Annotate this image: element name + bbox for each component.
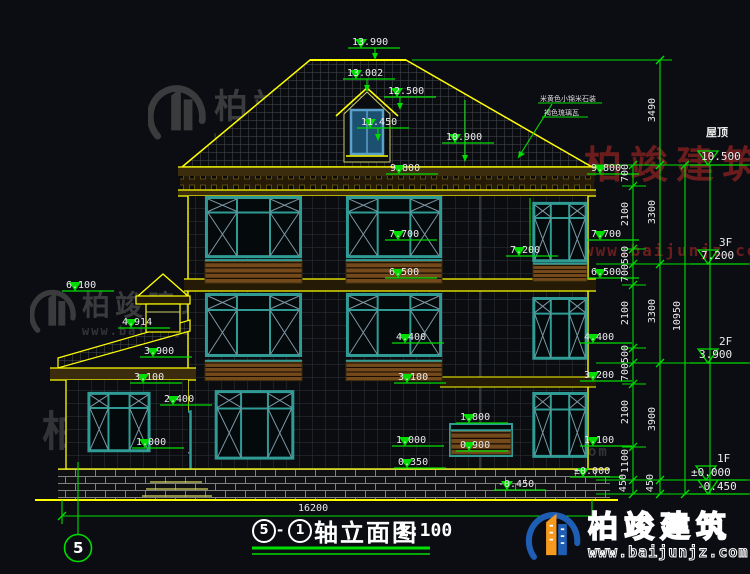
window-2f-right bbox=[347, 295, 440, 357]
level-label: 0.350 bbox=[398, 457, 428, 468]
dim-value: 3490 bbox=[647, 98, 658, 122]
dim-value: 3300 bbox=[647, 200, 658, 224]
level-label: 4.400 bbox=[396, 332, 426, 343]
roof-floor-level: 10.500 bbox=[701, 150, 741, 163]
level-label: -0.450 bbox=[498, 479, 534, 490]
level-label: 12.500 bbox=[388, 86, 424, 97]
porch-fascia bbox=[50, 368, 196, 380]
level-label: 6.100 bbox=[66, 280, 96, 291]
level-label: 3.900 bbox=[144, 346, 174, 357]
brand-logo-icon bbox=[524, 505, 582, 569]
level-label: 13.990 bbox=[352, 37, 388, 48]
brand-logo: 柏竣建筑 www.baijunjz.com bbox=[524, 502, 750, 572]
dim-value: 700 bbox=[620, 164, 631, 182]
window-3f-right bbox=[347, 197, 440, 257]
level-label: 9.800 bbox=[390, 163, 420, 174]
level-label: 3.100 bbox=[134, 372, 164, 383]
level-label: 9.800 bbox=[591, 163, 621, 174]
f2-floor-label: 2F bbox=[719, 335, 732, 348]
dim-value: 500 bbox=[620, 246, 631, 264]
title-axis-start: 5 bbox=[252, 519, 276, 543]
level-label: 10.900 bbox=[446, 132, 482, 143]
level-label: 7.200 bbox=[510, 245, 540, 256]
roof-note-line1: 米黄色小锦米石装 bbox=[540, 94, 596, 104]
level-label: 7.700 bbox=[591, 229, 621, 240]
level-label: 4.400 bbox=[584, 332, 614, 343]
dim-value: 2100 bbox=[620, 301, 631, 325]
brand-logo-text: 柏竣建筑 bbox=[588, 513, 749, 543]
dim-value: 10950 bbox=[672, 301, 683, 331]
level-label: 3.100 bbox=[398, 372, 428, 383]
eave-cornice bbox=[178, 167, 596, 196]
dim-value: 3300 bbox=[647, 299, 658, 323]
f1-floor-level: ±0.000 bbox=[691, 466, 731, 479]
dim-value: 450 bbox=[645, 474, 656, 492]
dim-value: 1100 bbox=[620, 449, 631, 473]
building-elevation bbox=[35, 60, 618, 500]
cad-elevation-drawing: 柏竣建筑 www.baijunjz.com 柏竣建筑 www.baijunjz.… bbox=[0, 0, 750, 574]
level-label: 1.800 bbox=[460, 412, 490, 423]
dim-value: 3900 bbox=[647, 407, 658, 431]
level-label: ±0.000 bbox=[574, 466, 610, 477]
below-grade-level: -0.450 bbox=[697, 480, 737, 493]
title-dash: - bbox=[277, 521, 283, 539]
brand-logo-url: www.baijunjz.com bbox=[588, 543, 749, 561]
dim-value: 2100 bbox=[620, 400, 631, 424]
railing-2f-left bbox=[205, 361, 302, 381]
floor-level-markers bbox=[688, 151, 748, 494]
level-label: 1.000 bbox=[136, 437, 166, 448]
window-2f-left bbox=[206, 295, 300, 357]
level-label: 6.500 bbox=[591, 267, 621, 278]
axis-bubble-number: 5 bbox=[73, 539, 83, 557]
window-1f-tower bbox=[534, 394, 586, 457]
f1-floor-label: 1F bbox=[717, 452, 730, 465]
window-2f-tower bbox=[534, 298, 586, 358]
drawing-scale: 1:100 bbox=[398, 520, 452, 541]
dim-value: 2100 bbox=[620, 202, 631, 226]
title-axis-end: 1 bbox=[288, 519, 312, 543]
level-label: 1.100 bbox=[584, 435, 614, 446]
railing-3f-tower bbox=[533, 264, 587, 282]
level-label: 6.500 bbox=[389, 267, 419, 278]
window-3f-tower bbox=[534, 203, 586, 261]
dim-value: 500 bbox=[620, 345, 631, 363]
level-label: 13.002 bbox=[347, 68, 383, 79]
f2-floor-level: 3.900 bbox=[699, 348, 732, 361]
level-label: 11.450 bbox=[361, 117, 397, 128]
level-label: 7.700 bbox=[389, 229, 419, 240]
level-label: 1.000 bbox=[396, 435, 426, 446]
level-label: 0.900 bbox=[460, 440, 490, 451]
f3-floor-level: 7.200 bbox=[701, 249, 734, 262]
dim-value: 700 bbox=[620, 363, 631, 381]
window-3f-left bbox=[206, 197, 300, 257]
roof-note-line2: 褐色琉璃瓦 bbox=[544, 108, 579, 118]
roof-floor-label: 屋顶 bbox=[706, 124, 728, 140]
f3-floor-label: 3F bbox=[719, 236, 732, 249]
level-label: 2.400 bbox=[164, 394, 194, 405]
level-label: 3.200 bbox=[584, 370, 614, 381]
window-1f-main bbox=[216, 392, 293, 459]
slab-band-3200 bbox=[440, 377, 596, 387]
dim-value: 700 bbox=[620, 264, 631, 282]
level-label: 4.914 bbox=[122, 317, 152, 328]
dim-value: 450 bbox=[618, 474, 629, 492]
cad-canvas bbox=[0, 0, 750, 574]
railing-3f-left bbox=[205, 260, 302, 283]
